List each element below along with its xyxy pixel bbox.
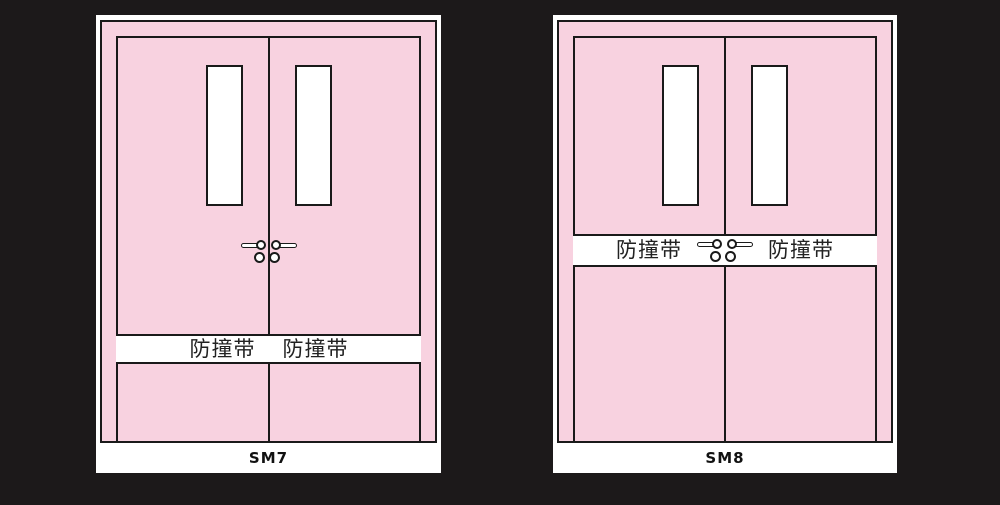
- bumper-strip-right-half: 防撞带: [269, 336, 422, 362]
- door-frame: 防撞带 防撞带: [100, 20, 437, 443]
- handle-rose-left-icon: [712, 239, 722, 249]
- bumper-strip-band: 防撞带 防撞带: [116, 334, 421, 364]
- door-window-right: [295, 65, 332, 206]
- door-window-left: [662, 65, 699, 206]
- door-handles: [697, 239, 753, 262]
- door-window-right: [751, 65, 788, 206]
- lock-cylinder-right-icon: [269, 252, 280, 263]
- door-leaves: 防撞带 防撞带: [116, 36, 421, 443]
- door-diagram-sm8: 防撞带 防撞带 SM8: [553, 15, 897, 473]
- bumper-strip-left-half: 防撞带: [116, 336, 269, 362]
- lock-cylinder-left-icon: [254, 252, 265, 263]
- door-diagram-sm7: 防撞带 防撞带 SM7: [96, 15, 441, 473]
- door-leaves: 防撞带 防撞带: [573, 36, 877, 443]
- bumper-strip-label: 防撞带: [768, 240, 834, 261]
- bumper-strip-label: 防撞带: [190, 339, 256, 360]
- diagram-caption: SM8: [553, 443, 897, 473]
- lock-cylinder-left-icon: [710, 251, 721, 262]
- lock-cylinder-right-icon: [725, 251, 736, 262]
- handle-rose-left-icon: [256, 240, 266, 250]
- door-window-left: [206, 65, 243, 206]
- handle-rose-right-icon: [271, 240, 281, 250]
- handle-rose-right-icon: [727, 239, 737, 249]
- bumper-strip-label: 防撞带: [616, 240, 682, 261]
- bumper-strip-label: 防撞带: [283, 339, 349, 360]
- door-handles: [241, 240, 297, 263]
- door-frame: 防撞带 防撞带: [557, 20, 893, 443]
- diagram-caption: SM7: [96, 443, 441, 473]
